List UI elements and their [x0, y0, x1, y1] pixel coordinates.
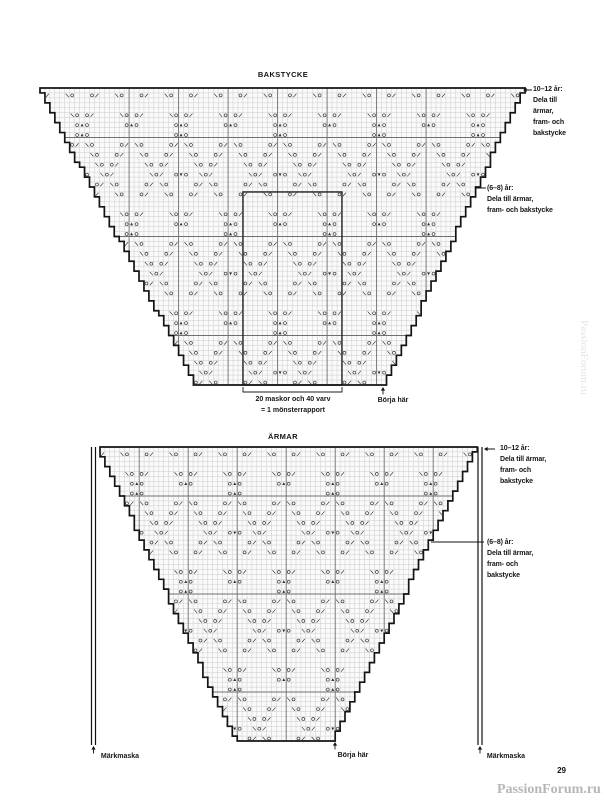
- watermark-side: PassionForum.ru: [578, 320, 589, 395]
- annotation-size-6-8-sleeve: (6–8) år: Dela till ärmar, fram- och bak…: [487, 537, 533, 581]
- watermark-corner: PassionForum.ru: [497, 782, 601, 798]
- chart-title-armar: ÄRMAR: [188, 432, 378, 441]
- annotation-line: fram- och bakstycke: [487, 205, 553, 216]
- annotation-line: (6–8) år:: [487, 183, 553, 194]
- annotation-size-6-8-back: (6–8) år: Dela till ärmar, fram- och bak…: [487, 183, 553, 216]
- annotation-line: bakstycke: [487, 570, 533, 581]
- marker-stitch-label-right: Märkmaska: [446, 752, 566, 762]
- annotation-line: Dela till: [533, 95, 566, 106]
- annotation-line: fram- och: [533, 117, 566, 128]
- scanned-pattern-page: BAKSTYCKE ÄRMAR 10–12 år: Dela till ärma…: [0, 0, 604, 800]
- annotation-line: Dela till ärmar,: [500, 454, 546, 465]
- annotation-line: fram- och: [487, 559, 533, 570]
- annotation-line: Dela till ärmar,: [487, 194, 553, 205]
- annotation-size-10-12-sleeve: 10–12 år: Dela till ärmar, fram- och bak…: [500, 443, 546, 487]
- annotation-line: fram- och: [500, 465, 546, 476]
- page-number: 29: [557, 766, 566, 775]
- annotation-line: bakstycke: [500, 476, 546, 487]
- repeat-bracket-label: 20 maskor och 40 varv = 1 mönsterrapport: [213, 395, 373, 416]
- annotation-size-10-12-back: 10–12 år: Dela till ärmar, fram- och bak…: [533, 84, 566, 139]
- start-here-label-sleeve: Börja här: [313, 751, 393, 761]
- annotation-line: 10–12 år:: [500, 443, 546, 454]
- annotation-line: (6–8) år:: [487, 537, 533, 548]
- bracket-line-1: 20 maskor och 40 varv: [213, 395, 373, 406]
- annotation-line: bakstycke: [533, 128, 566, 139]
- annotation-line: Dela till ärmar,: [487, 548, 533, 559]
- start-here-label-back: Börja här: [353, 396, 433, 406]
- bracket-line-2: = 1 mönsterrapport: [213, 406, 373, 417]
- marker-stitch-label-left: Märkmaska: [60, 752, 180, 762]
- annotation-line: ärmar,: [533, 106, 566, 117]
- annotation-line: 10–12 år:: [533, 84, 566, 95]
- chart-title-bakstycke: BAKSTYCKE: [183, 70, 383, 79]
